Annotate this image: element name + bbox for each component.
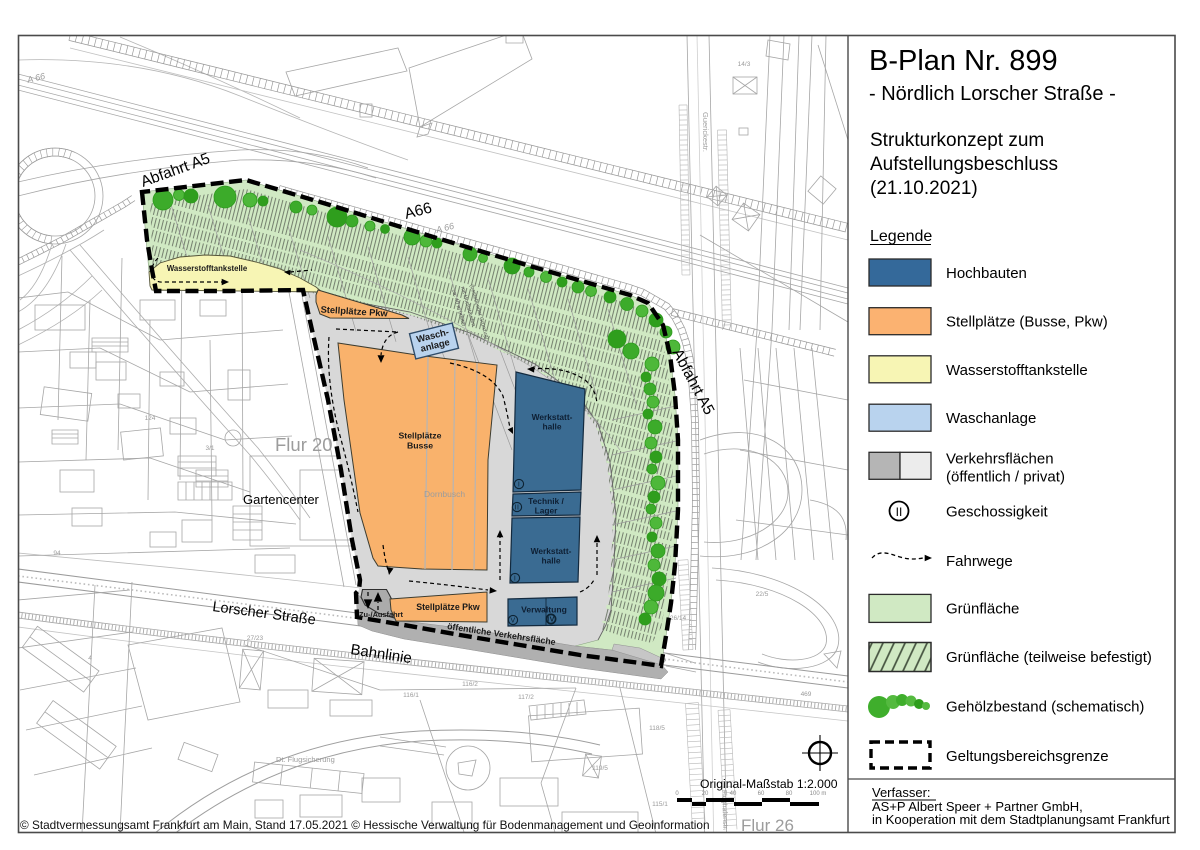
svg-text:116/2: 116/2 bbox=[462, 681, 478, 688]
svg-text:Verkehrsflächen: Verkehrsflächen bbox=[946, 451, 1054, 468]
svg-text:469: 469 bbox=[801, 691, 812, 698]
svg-text:20: 20 bbox=[702, 791, 709, 797]
svg-text:Strukturkonzept zum: Strukturkonzept zum bbox=[870, 130, 1044, 151]
svg-text:Grünfläche: Grünfläche bbox=[946, 601, 1019, 618]
svg-text:Stellplätze (Busse, Pkw): Stellplätze (Busse, Pkw) bbox=[946, 314, 1108, 331]
svg-text:Wasserstofftankstelle: Wasserstofftankstelle bbox=[946, 362, 1088, 379]
svg-text:Waschanlage: Waschanlage bbox=[946, 410, 1036, 427]
svg-text:I: I bbox=[518, 482, 520, 489]
svg-text:Geschossigkeit: Geschossigkeit bbox=[946, 504, 1049, 521]
svg-text:Gehölzbestand (schematisch): Gehölzbestand (schematisch) bbox=[946, 699, 1144, 716]
svg-text:14/3: 14/3 bbox=[738, 61, 751, 68]
svg-text:80: 80 bbox=[786, 791, 793, 797]
svg-text:26/14: 26/14 bbox=[670, 615, 687, 622]
svg-text:II: II bbox=[515, 505, 520, 512]
svg-text:Stellplätze: Stellplätze bbox=[399, 431, 442, 441]
svg-text:118/5: 118/5 bbox=[649, 725, 665, 732]
svg-text:Hochbauten: Hochbauten bbox=[946, 265, 1027, 282]
svg-text:Dt. Flugsicherung: Dt. Flugsicherung bbox=[276, 755, 335, 764]
svg-text:Flur 20: Flur 20 bbox=[275, 434, 333, 455]
svg-text:124: 124 bbox=[145, 415, 156, 422]
svg-text:- Nördlich Lorscher Straße -: - Nördlich Lorscher Straße - bbox=[869, 83, 1116, 105]
svg-text:halle: halle bbox=[541, 556, 560, 566]
svg-text:Guerickestr.: Guerickestr. bbox=[701, 112, 710, 152]
svg-text:Technik /: Technik / bbox=[528, 496, 564, 506]
svg-text:Busse: Busse bbox=[407, 441, 433, 451]
svg-text:117/2: 117/2 bbox=[518, 694, 534, 701]
svg-text:I: I bbox=[514, 576, 516, 583]
svg-text:94: 94 bbox=[53, 550, 61, 557]
svg-text:(öffentlich / privat): (öffentlich / privat) bbox=[946, 469, 1065, 486]
svg-text:halle: halle bbox=[542, 422, 561, 432]
svg-text:B-Plan Nr. 899: B-Plan Nr. 899 bbox=[869, 45, 1058, 77]
svg-text:Original-Maßstab 1:2.000: Original-Maßstab 1:2.000 bbox=[700, 777, 838, 791]
svg-text:Legende: Legende bbox=[870, 228, 932, 245]
svg-text:V: V bbox=[510, 618, 515, 625]
svg-text:Werkstatt-: Werkstatt- bbox=[531, 546, 572, 556]
svg-text:II: II bbox=[896, 505, 903, 519]
svg-text:40: 40 bbox=[730, 791, 737, 797]
svg-text:Verwaltung: Verwaltung bbox=[521, 605, 567, 615]
svg-text:Verfasser:: Verfasser: bbox=[872, 785, 931, 800]
svg-text:Gartencenter: Gartencenter bbox=[243, 492, 320, 507]
svg-text:in Kooperation mit dem Stadtpl: in Kooperation mit dem Stadtplanungsamt … bbox=[872, 812, 1170, 827]
svg-text:119/5: 119/5 bbox=[592, 765, 608, 772]
svg-text:22/5: 22/5 bbox=[756, 591, 769, 598]
svg-text:Grünfläche (teilweise befestig: Grünfläche (teilweise befestigt) bbox=[946, 649, 1152, 666]
svg-text:Fahrwege: Fahrwege bbox=[946, 553, 1013, 570]
svg-text:© Stadtvermessungsamt Frankfur: © Stadtvermessungsamt Frankfurt am Main,… bbox=[20, 818, 710, 832]
svg-text:IV: IV bbox=[547, 617, 554, 624]
svg-text:(21.10.2021): (21.10.2021) bbox=[870, 178, 978, 199]
svg-text:3/1: 3/1 bbox=[205, 445, 214, 452]
svg-text:Stellplätze Pkw: Stellplätze Pkw bbox=[416, 602, 480, 612]
svg-text:116/1: 116/1 bbox=[403, 692, 419, 699]
svg-text:Zu-/Ausfahrt: Zu-/Ausfahrt bbox=[359, 610, 403, 619]
svg-text:Flughafenstr.: Flughafenstr. bbox=[720, 790, 728, 831]
svg-text:Dornbusch: Dornbusch bbox=[424, 489, 465, 499]
svg-text:Lager: Lager bbox=[535, 506, 559, 516]
svg-text:60: 60 bbox=[758, 791, 765, 797]
svg-text:Geltungsbereichsgrenze: Geltungsbereichsgrenze bbox=[946, 748, 1109, 765]
svg-text:100 m: 100 m bbox=[810, 791, 827, 797]
svg-text:Wasserstofftankstelle: Wasserstofftankstelle bbox=[167, 264, 248, 273]
svg-text:4: 4 bbox=[88, 655, 92, 662]
svg-text:115/1: 115/1 bbox=[652, 801, 668, 808]
svg-text:Aufstellungsbeschluss: Aufstellungsbeschluss bbox=[870, 154, 1058, 175]
svg-text:27/23: 27/23 bbox=[247, 635, 264, 642]
svg-text:Werkstatt-: Werkstatt- bbox=[532, 412, 573, 422]
